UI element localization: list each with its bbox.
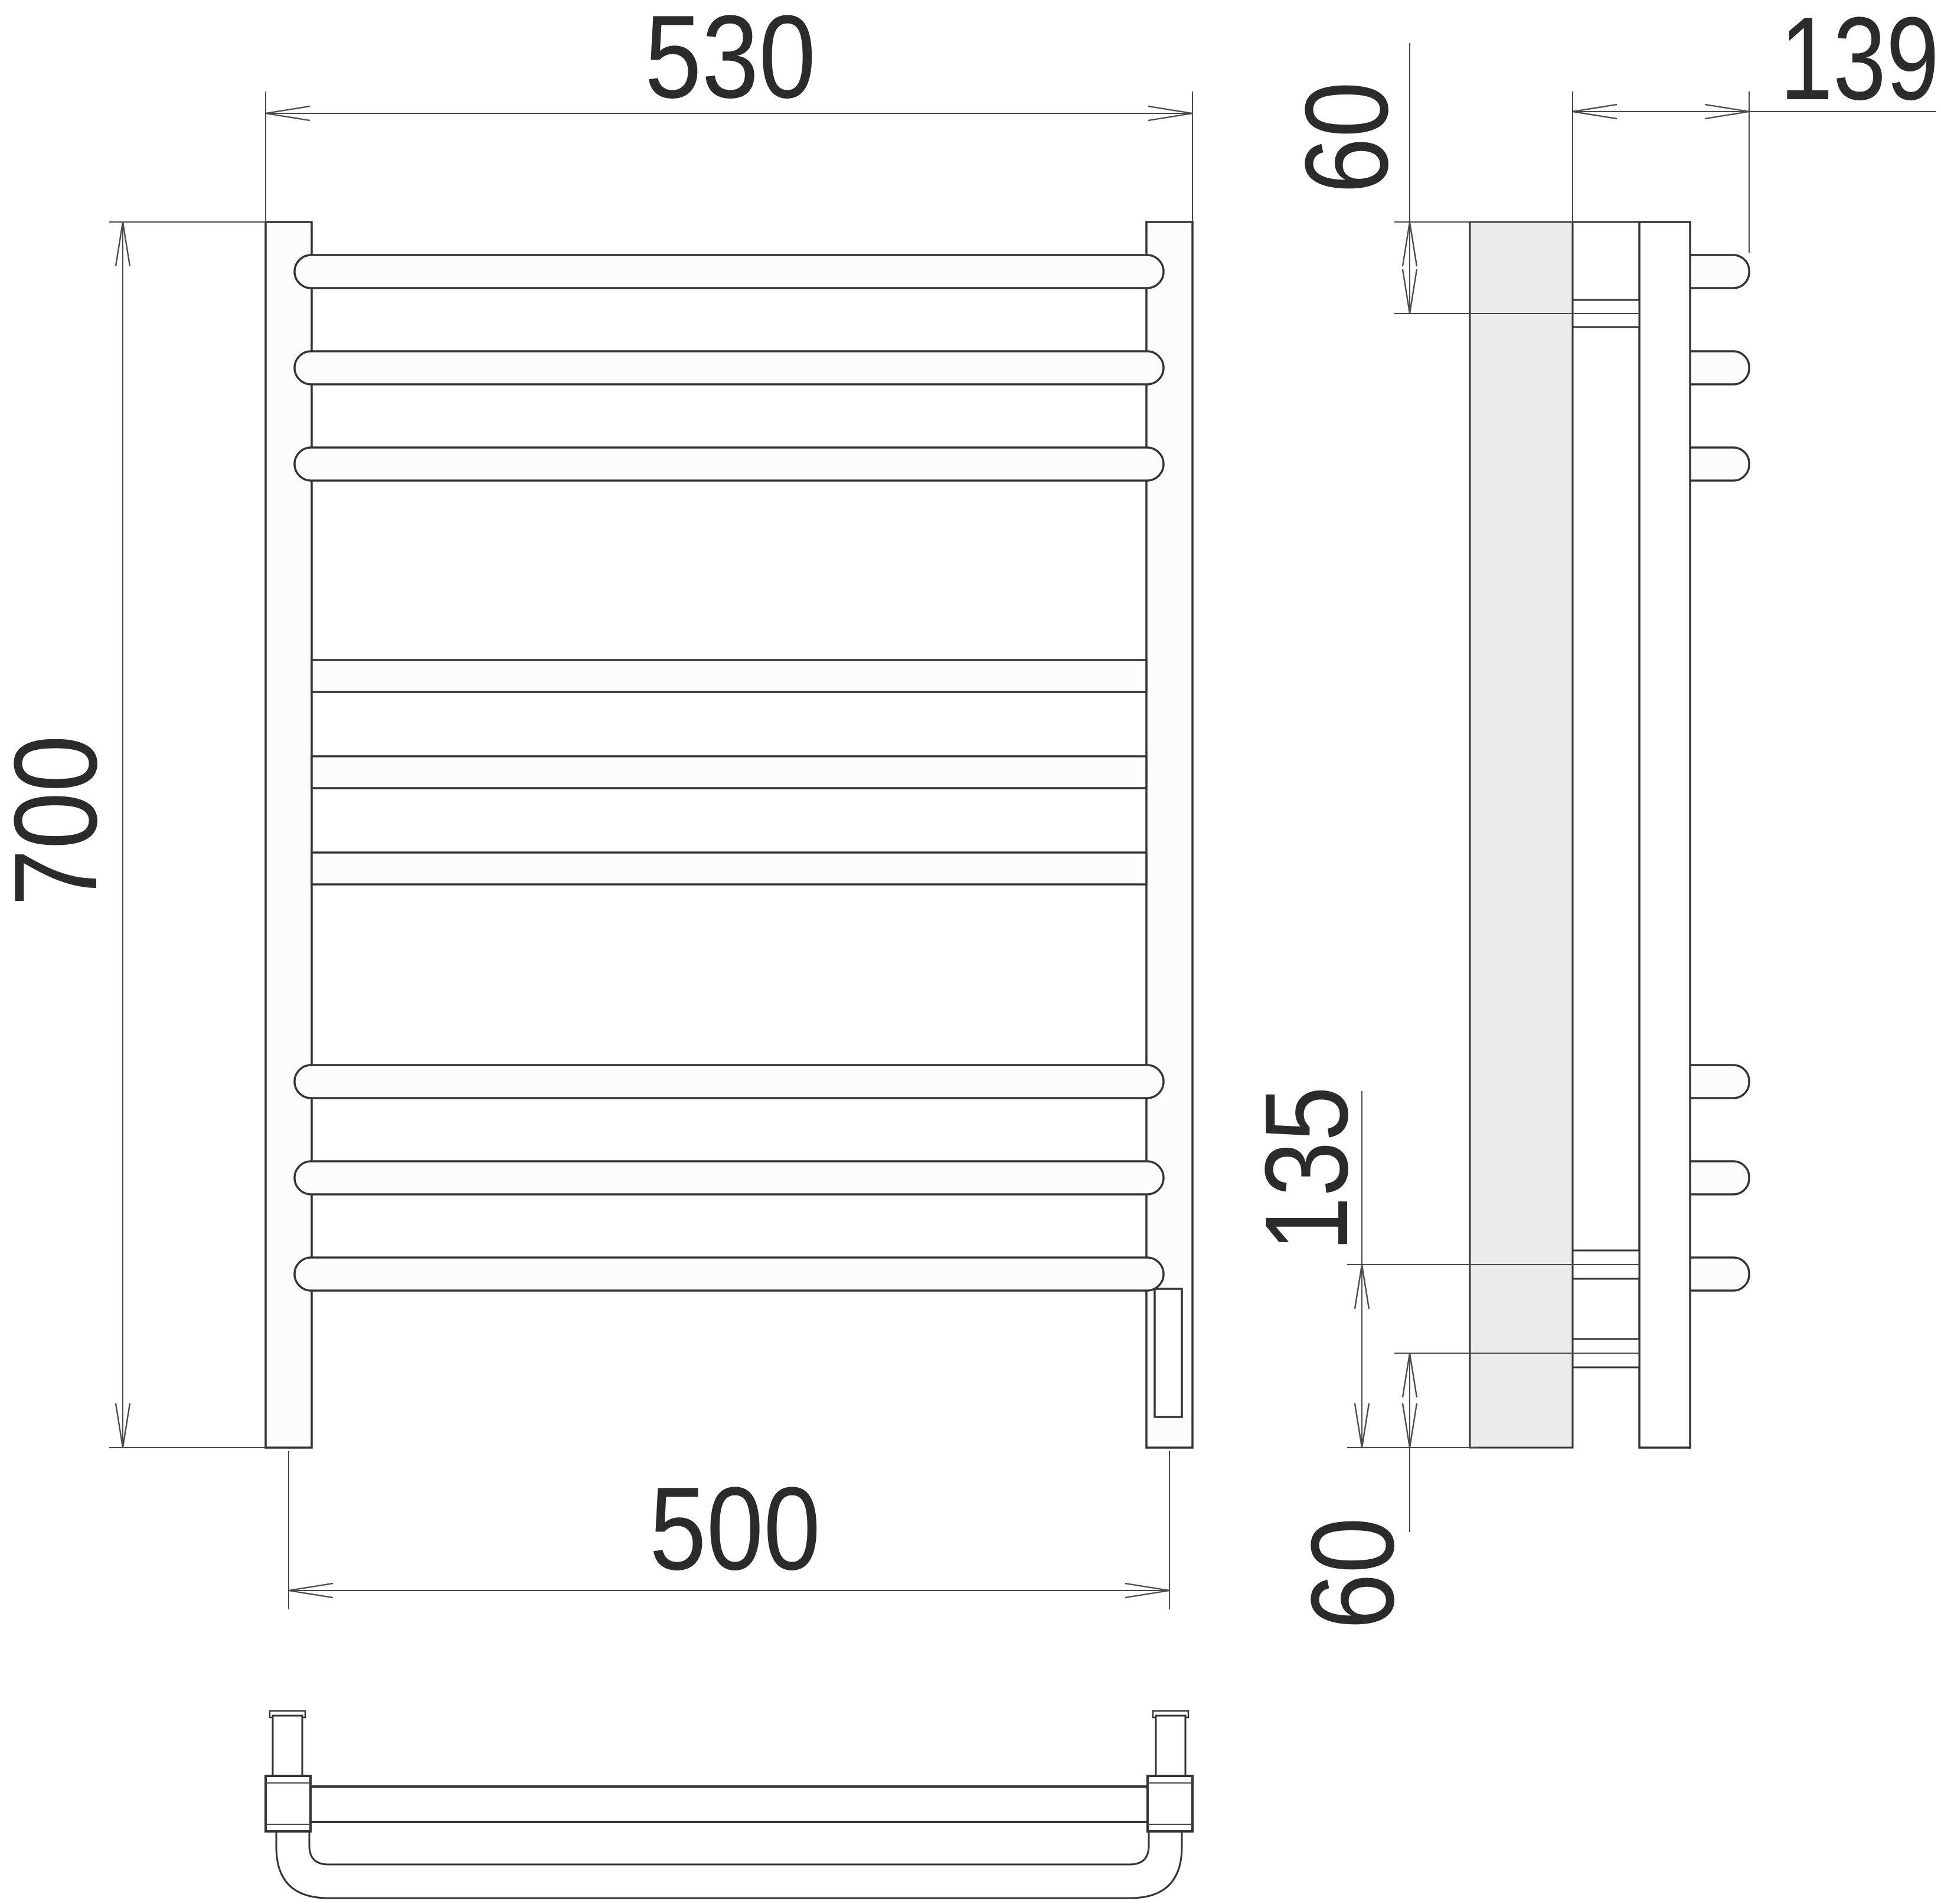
bottom-right-fitting <box>1148 1776 1192 1831</box>
dim-label-139: 139 <box>1780 0 1939 125</box>
bottom-left-stub <box>273 1716 302 1776</box>
fitting-body <box>1148 1776 1192 1831</box>
dim-label-700: 700 <box>0 735 122 906</box>
u-tube-inner <box>309 1831 1149 1864</box>
side-view: 139 60 135 60 <box>1241 0 1939 1629</box>
front-view: 530 700 500 <box>0 0 1192 1609</box>
bracket-top <box>1573 300 1639 327</box>
dim-label-60-bottom: 60 <box>1287 1517 1419 1629</box>
towel-rail-drawing: 530 700 500 <box>0 0 1941 1904</box>
fitting-body <box>266 1776 311 1831</box>
heating-element-box <box>1155 1289 1182 1417</box>
drawing-page: 530 700 500 <box>0 0 1941 1904</box>
bracket-middle <box>1573 1250 1639 1279</box>
towel-bar-round-3 <box>295 448 1164 481</box>
bottom-left-fitting <box>266 1776 311 1831</box>
towel-bar-round-1 <box>295 255 1164 288</box>
bottom-view <box>266 1711 1192 1898</box>
dim-front-overall-height: 700 <box>0 222 266 1448</box>
towel-bar-round-4 <box>295 1065 1164 1098</box>
towel-bar-round-6 <box>295 1258 1164 1291</box>
wall-mount-plate <box>1470 222 1573 1448</box>
bracket-bottom <box>1573 1339 1639 1367</box>
dim-front-axis-width: 500 <box>289 1451 1169 1609</box>
dim-front-overall-width: 530 <box>266 0 1192 222</box>
towel-bar-flat-1 <box>312 660 1146 692</box>
towel-bar-flat-3 <box>312 853 1146 884</box>
dim-label-135: 135 <box>1241 1086 1373 1252</box>
dim-label-530: 530 <box>645 0 816 123</box>
side-rail-tube <box>1639 222 1690 1448</box>
towel-bar-round-5 <box>295 1161 1164 1194</box>
bottom-right-stub <box>1156 1716 1185 1776</box>
towel-bar-round-2 <box>295 351 1164 384</box>
dim-side-depth: 139 <box>1573 0 1939 253</box>
dim-label-500: 500 <box>649 1463 821 1595</box>
towel-bar-flat-2 <box>312 756 1146 788</box>
dim-label-60-top: 60 <box>1281 81 1413 194</box>
